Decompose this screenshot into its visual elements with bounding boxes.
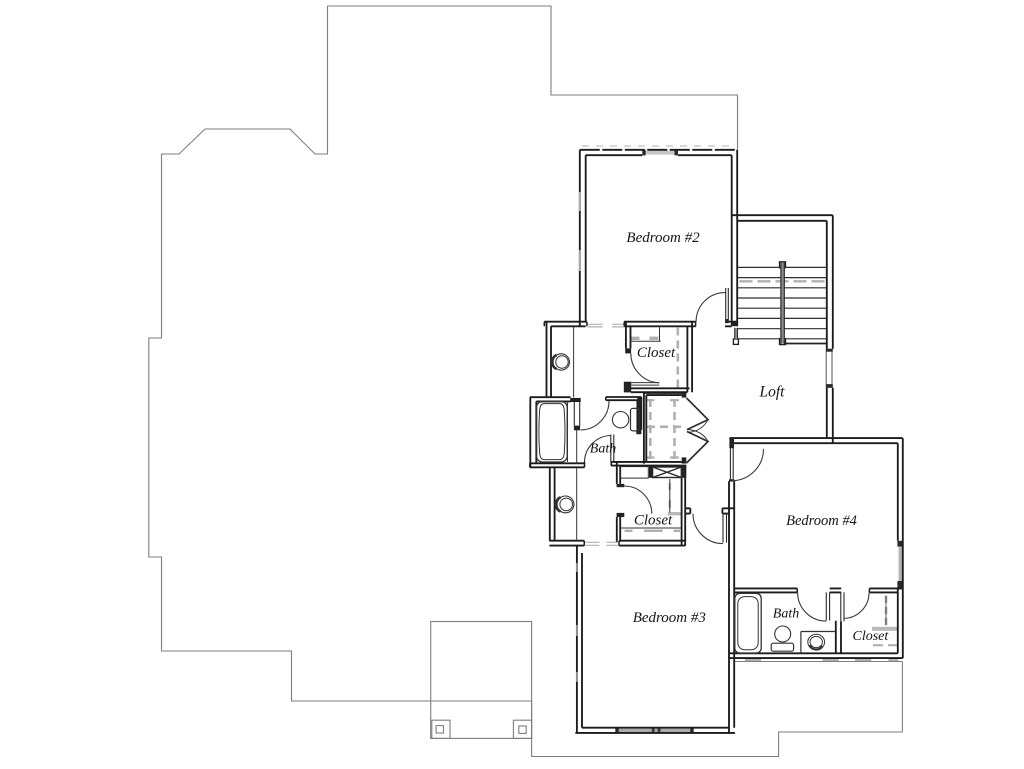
- svg-text:Closet: Closet: [634, 513, 673, 529]
- svg-text:Loft: Loft: [759, 384, 786, 401]
- svg-text:Bath: Bath: [773, 607, 799, 622]
- svg-text:Closet: Closet: [637, 345, 676, 361]
- svg-text:Bedroom #2: Bedroom #2: [626, 230, 700, 246]
- svg-text:Bedroom #4: Bedroom #4: [786, 513, 857, 529]
- svg-text:Bath: Bath: [590, 442, 616, 457]
- svg-text:Bedroom #3: Bedroom #3: [633, 610, 706, 626]
- svg-text:Closet: Closet: [853, 629, 890, 644]
